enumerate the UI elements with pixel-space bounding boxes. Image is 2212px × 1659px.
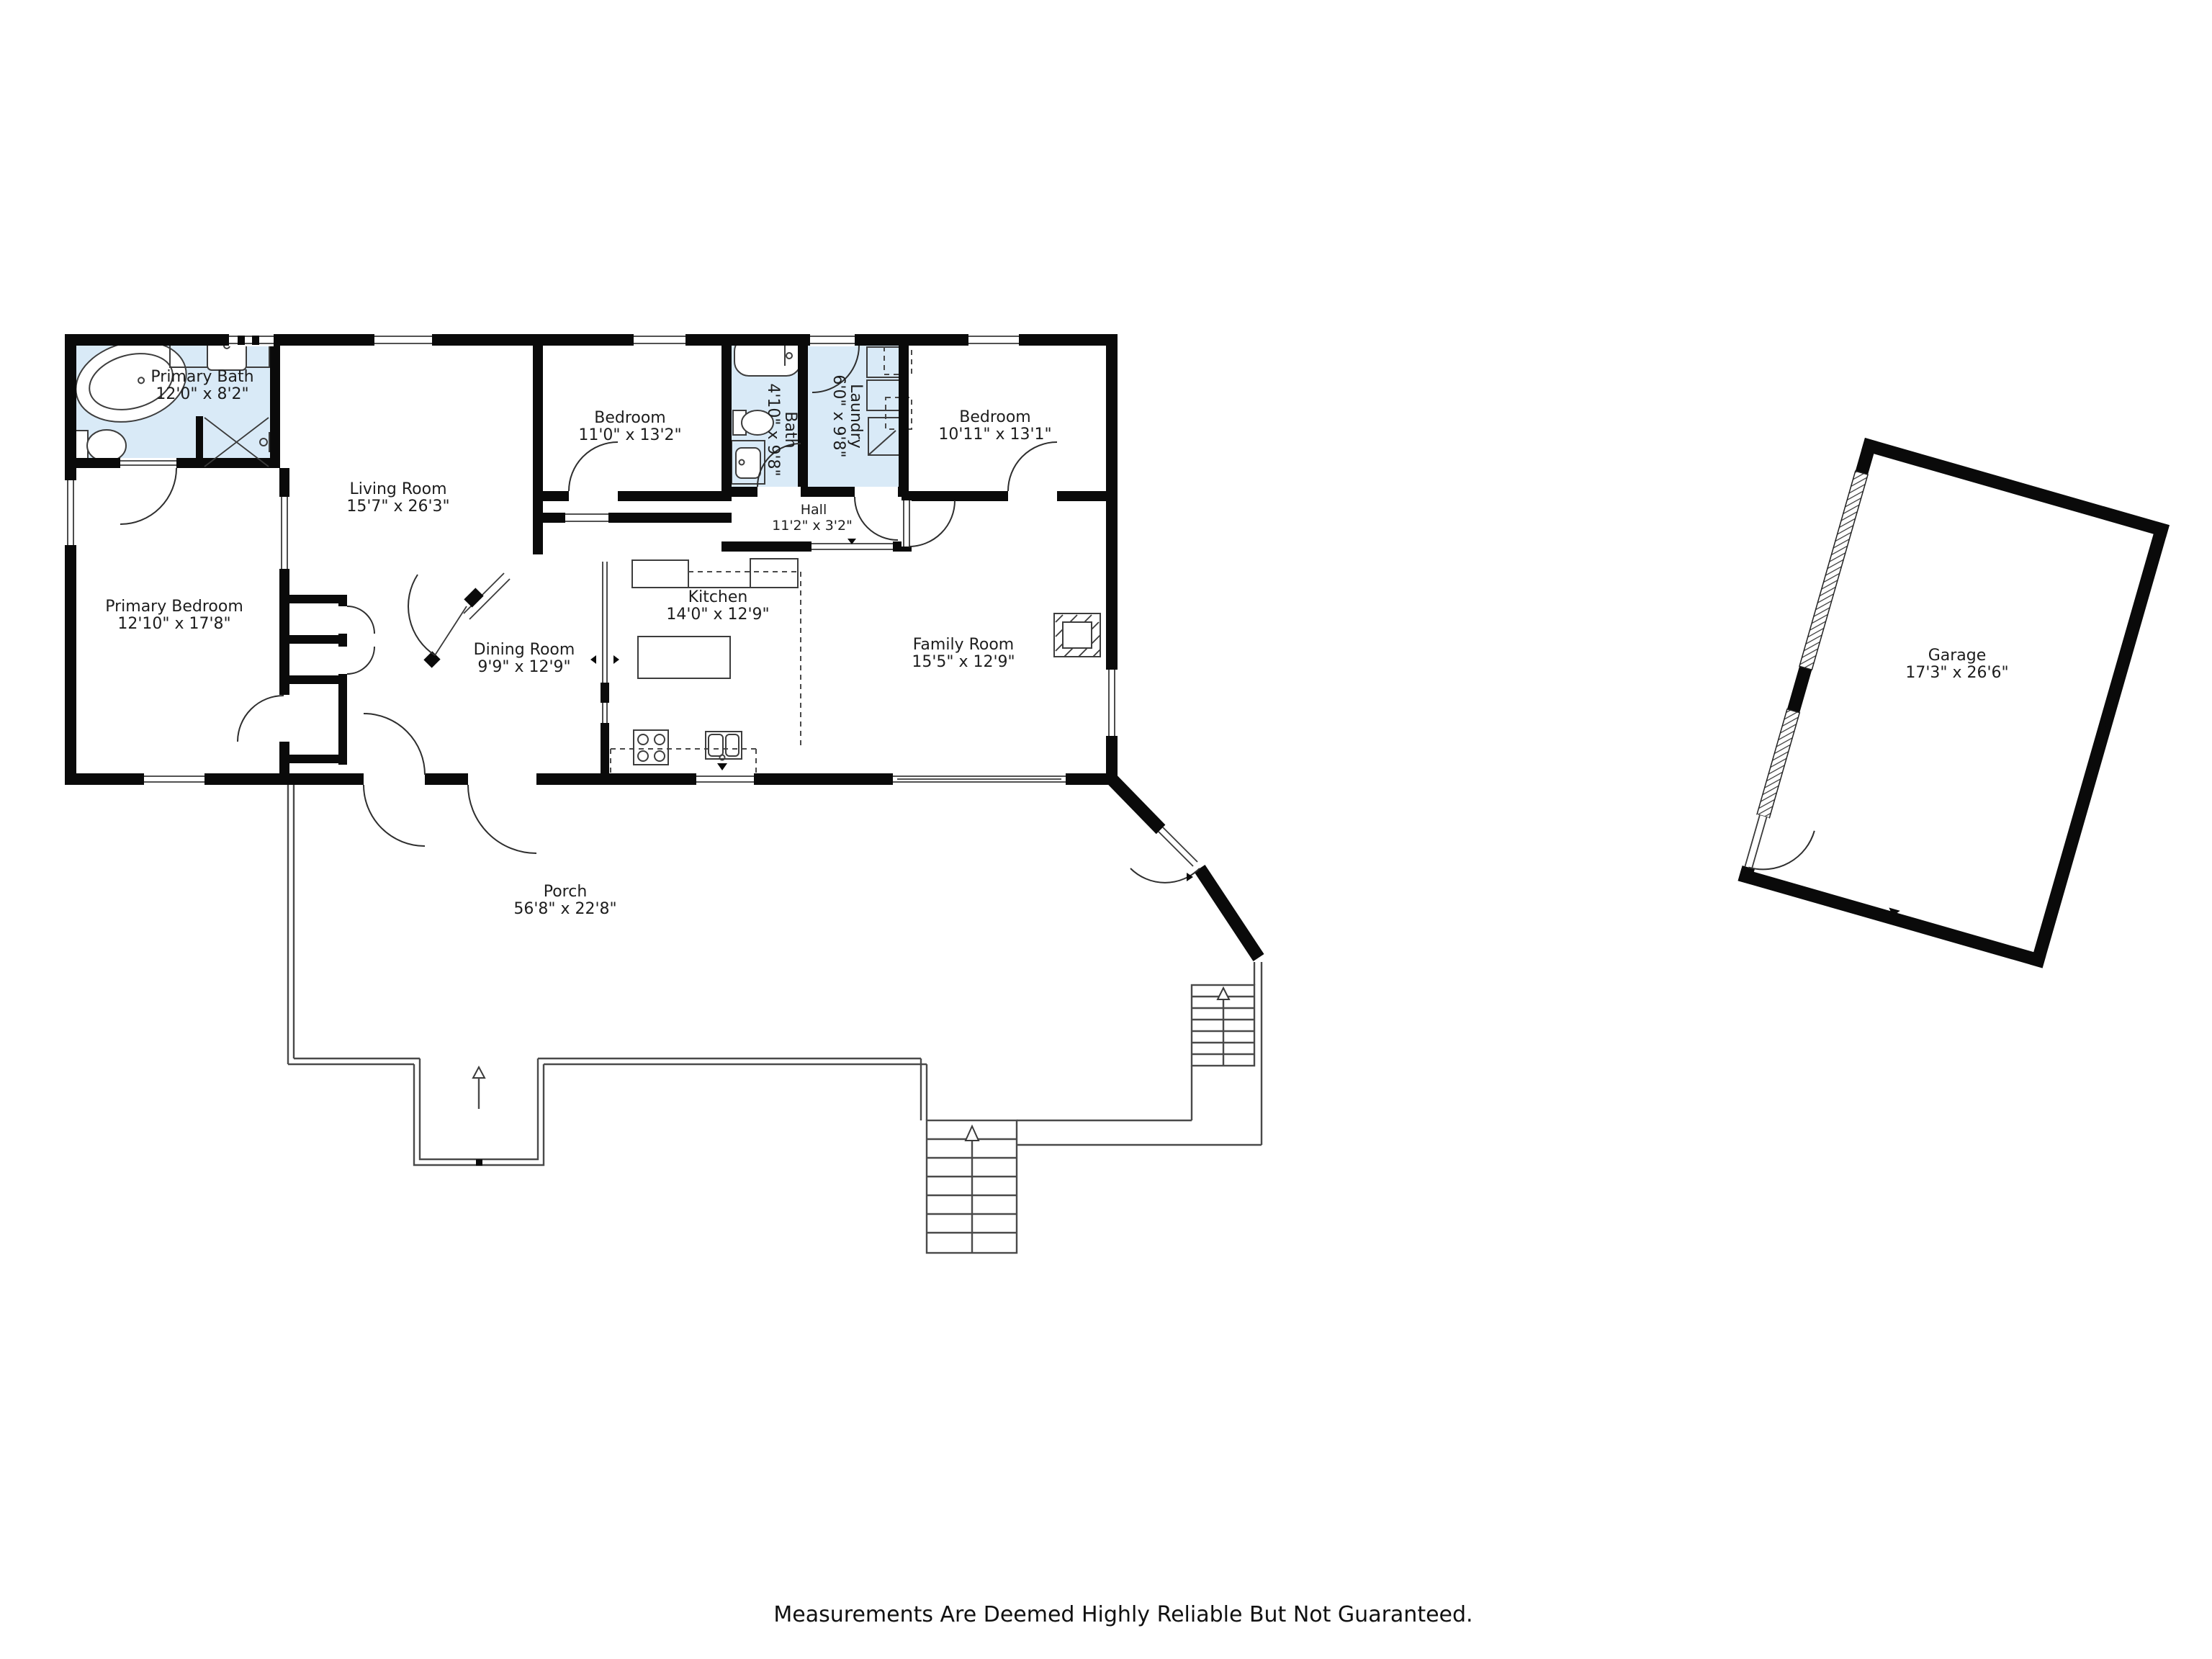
room-name: Dining Room [474, 641, 575, 659]
room-name: Family Room [913, 636, 1014, 654]
room-label-primary-bath: Primary Bath 12'0" x 8'2" [150, 368, 253, 403]
room-label-bedroom-right: Bedroom 10'11" x 13'1" [938, 408, 1051, 444]
room-name: Laundry [847, 384, 865, 449]
floorplan-canvas: Primary Bath 12'0" x 8'2" Living Room 15… [0, 0, 2212, 1659]
room-name: Living Room [349, 480, 446, 498]
room-dims: 12'10" x 17'8" [117, 615, 230, 633]
room-dims: 14'0" x 12'9" [666, 606, 769, 624]
room-label-primary-bedroom: Primary Bedroom 12'10" x 17'8" [105, 598, 243, 633]
door [902, 500, 955, 547]
room-dims: 15'7" x 26'3" [346, 498, 449, 516]
porch-step-tick [476, 1159, 482, 1166]
room-label-kitchen: Kitchen 14'0" x 12'9" [666, 588, 769, 624]
door [120, 458, 176, 524]
toilet [72, 430, 126, 462]
room-label-bedroom-top: Bedroom 11'0" x 13'2" [578, 409, 681, 444]
window [64, 480, 77, 545]
stairs-upper [1192, 985, 1254, 1066]
room-label-laundry: Laundry 6'0" x 9'8" [829, 374, 865, 457]
window [696, 773, 754, 786]
room-name: Bedroom [594, 409, 666, 427]
deck-door [1130, 827, 1200, 883]
room-label-living-room: Living Room 15'7" x 26'3" [346, 480, 449, 516]
room-dims: 9'9" x 12'9" [477, 658, 570, 676]
cased-opening [811, 539, 893, 552]
room-label-porch: Porch 56'8" x 22'8" [513, 883, 616, 918]
room-dims: 6'0" x 9'8" [829, 374, 848, 457]
garage-structure [1738, 438, 2170, 968]
door [1008, 442, 1057, 501]
stairs-up-arrow [966, 1126, 979, 1141]
room-name: Kitchen [688, 588, 748, 606]
room-label-dining-room: Dining Room 9'9" x 12'9" [474, 641, 575, 676]
room-name: Hall [801, 502, 827, 518]
porch-door [364, 714, 425, 846]
room-label-hall: Hall 11'2" x 3'2" [772, 502, 853, 534]
wall-top [65, 334, 1118, 346]
cased-opening [565, 513, 608, 523]
cased-opening [279, 497, 289, 569]
room-dims: 12'0" x 8'2" [156, 385, 248, 403]
window [1105, 670, 1118, 736]
garage-door-panel [1757, 471, 1868, 818]
room-dims: 4'10" x 9'8" [764, 383, 782, 476]
kitchen-counter [632, 559, 801, 747]
room-name: Primary Bath [150, 368, 253, 386]
tub-faucet [229, 333, 274, 346]
room-name: Primary Bedroom [105, 598, 243, 616]
room-name: Bedroom [959, 408, 1031, 426]
kitchen-sink [706, 732, 742, 770]
porch-outline [288, 785, 1262, 1253]
room-dims: 10'11" x 13'1" [938, 426, 1051, 444]
fireplace [1054, 613, 1100, 657]
window [144, 773, 204, 786]
room-dims: 56'8" x 22'8" [513, 900, 616, 918]
kitchen-island [638, 637, 730, 678]
stairs-lower [927, 1120, 1017, 1253]
porch-entry-arrow [473, 1067, 485, 1078]
kitchen-counter-dashed [611, 749, 756, 773]
room-label-family-room: Family Room 15'5" x 12'9" [912, 636, 1015, 671]
angled-door [408, 575, 467, 655]
porch-door [468, 773, 536, 853]
room-name: Bath [781, 411, 799, 448]
room-dims: 11'0" x 13'2" [578, 426, 681, 444]
door [569, 442, 618, 501]
room-dims: 15'5" x 12'9" [912, 653, 1015, 671]
floorplan-page: Primary Bath 12'0" x 8'2" Living Room 15… [0, 0, 2212, 1659]
room-dims: 11'2" x 3'2" [772, 518, 853, 534]
room-name: Porch [544, 883, 588, 901]
door [238, 695, 289, 742]
disclaimer-text: Measurements Are Deemed Highly Reliable … [773, 1602, 1473, 1627]
room-dims: 17'3" x 26'6" [1905, 664, 2008, 682]
stairs-up-arrow [1218, 988, 1229, 999]
door [855, 487, 898, 540]
room-label-garage: Garage 17'3" x 26'6" [1905, 647, 2008, 682]
room-name: Garage [1928, 647, 1987, 665]
stove [634, 730, 668, 765]
wall-left [65, 334, 76, 785]
sliding-door [893, 773, 1066, 786]
